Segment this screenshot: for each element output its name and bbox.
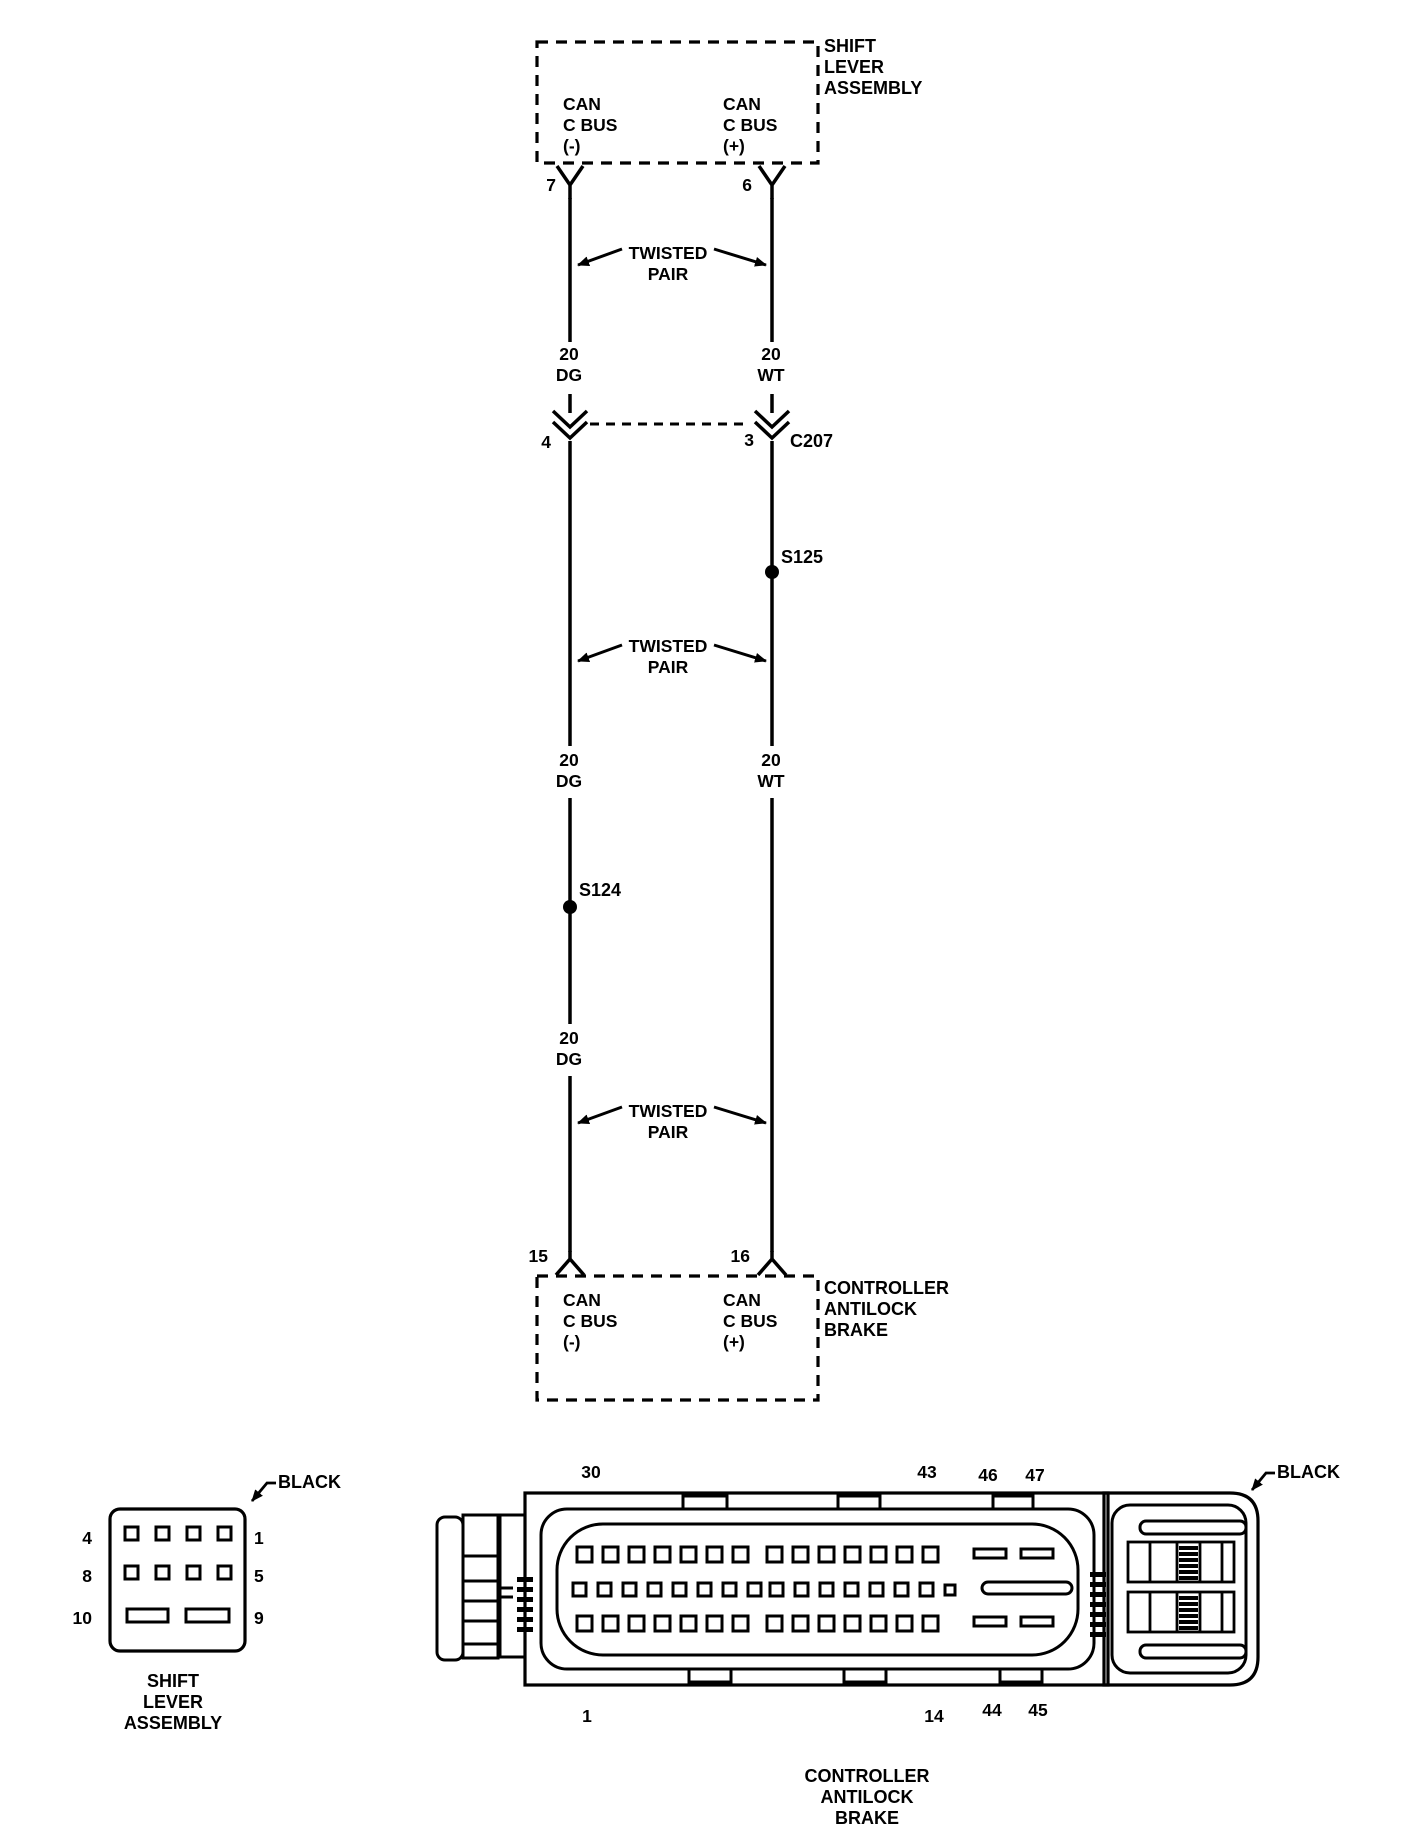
cab-pin-46: 46 (968, 1465, 1008, 1486)
pin-cavity (897, 1616, 912, 1631)
pin-cavity (748, 1583, 761, 1596)
sla-pin-9: 9 (254, 1608, 264, 1629)
pin-cavity (655, 1616, 670, 1631)
sla-pin-10: 10 (54, 1608, 92, 1629)
fork-bottom-left-icon (556, 1251, 584, 1275)
sla-pin-1: 1 (254, 1528, 264, 1549)
pin-cavity (845, 1616, 860, 1631)
pin-cavity (707, 1547, 722, 1562)
bottom-signal-left-label: CAN C BUS (-) (563, 1290, 617, 1353)
terminal-stripes (1179, 1546, 1198, 1630)
pin-cavity (923, 1616, 938, 1631)
wiring-diagram-page: CAN C BUS (-) CAN C BUS (+) SHIFT LEVER … (0, 0, 1408, 1828)
pin-cavity (793, 1547, 808, 1562)
pin-cavity (793, 1616, 808, 1631)
splice-dot-s124 (563, 900, 577, 914)
bottom-pin-left-number: 15 (514, 1246, 548, 1267)
pin-cavity (723, 1583, 736, 1596)
bottom-pin-right-number: 16 (716, 1246, 750, 1267)
pin-cavity (629, 1547, 644, 1562)
pin-cavity (870, 1583, 883, 1596)
cab-connector-drawing (437, 1493, 1258, 1685)
pin-cavity (920, 1583, 933, 1596)
pin-cavity (655, 1547, 670, 1562)
pin-cavity (733, 1616, 748, 1631)
pin-cavity (603, 1616, 618, 1631)
sla-pin-8: 8 (62, 1566, 92, 1587)
twisted-pair-label-1: TWISTED PAIR (601, 243, 735, 285)
bottom-component-name: CONTROLLER ANTILOCK BRAKE (824, 1278, 949, 1341)
pin-cavity (871, 1616, 886, 1631)
pin-cavity (770, 1583, 783, 1596)
pin-cavity (895, 1583, 908, 1596)
pin-cavity (819, 1616, 834, 1631)
pin-cavity (598, 1583, 611, 1596)
black-callout-arrows (252, 1473, 1275, 1501)
pin-cavity (573, 1583, 586, 1596)
pin-cavity (623, 1583, 636, 1596)
pin-cavity (577, 1616, 592, 1631)
pin-cavity (577, 1547, 592, 1562)
pin-cavity (673, 1583, 686, 1596)
top-pin-left-number: 7 (530, 175, 556, 196)
sla-caption: SHIFT LEVER ASSEMBLY (93, 1671, 253, 1734)
pin-cavity (603, 1547, 618, 1562)
splice-s124-label: S124 (579, 880, 621, 901)
fork-bottom-right-icon (758, 1251, 786, 1275)
sla-pin-5: 5 (254, 1566, 264, 1587)
c207-connector-name: C207 (790, 431, 833, 452)
pin-cavity (871, 1547, 886, 1562)
pin-cavity (629, 1616, 644, 1631)
sla-pin-4: 4 (62, 1528, 92, 1549)
pin-cavity (845, 1547, 860, 1562)
cab-caption: CONTROLLER ANTILOCK BRAKE (767, 1766, 967, 1828)
pin-cavity (733, 1547, 748, 1562)
pin-cavity (923, 1547, 938, 1562)
pin-cavity (819, 1547, 834, 1562)
cab-pin-30: 30 (571, 1462, 611, 1483)
can-bus-wires (570, 198, 772, 1252)
c207-pin-right-number: 3 (726, 430, 754, 451)
bottom-signal-right-label: CAN C BUS (+) (723, 1290, 777, 1353)
pin-cavity (795, 1583, 808, 1596)
pin-cavity (820, 1583, 833, 1596)
pin-cavity (897, 1547, 912, 1562)
cab-color-label: BLACK (1277, 1462, 1340, 1483)
cab-pin-45: 45 (1018, 1700, 1058, 1721)
sla-connector-drawing (110, 1509, 245, 1651)
wire-gauge-right-1: 20 WT (744, 344, 798, 386)
pin-cavity (681, 1616, 696, 1631)
twisted-pair-label-3: TWISTED PAIR (601, 1101, 735, 1143)
cab-pin-1: 1 (567, 1706, 607, 1727)
pin-cavity (767, 1616, 782, 1631)
fork-top-left-icon (557, 166, 583, 199)
cab-black-arrow (1252, 1473, 1275, 1490)
cab-pin-43: 43 (907, 1462, 947, 1483)
cab-pin-47: 47 (1015, 1465, 1055, 1486)
wire-gauge-left-1: 20 DG (542, 344, 596, 386)
fork-top-right-icon (759, 166, 785, 199)
pin-cavity (698, 1583, 711, 1596)
cab-pin-field (573, 1547, 938, 1631)
cab-pin-14: 14 (914, 1706, 954, 1727)
twisted-pair-label-2: TWISTED PAIR (601, 636, 735, 678)
splice-s125-label: S125 (781, 547, 823, 568)
c207-pin-left-number: 4 (523, 432, 551, 453)
top-pin-right-number: 6 (726, 175, 752, 196)
pin-cavity (707, 1616, 722, 1631)
pin-cavity (845, 1583, 858, 1596)
top-signal-right-label: CAN C BUS (+) (723, 94, 777, 157)
cab-pin-44: 44 (972, 1700, 1012, 1721)
pin-cavity (767, 1547, 782, 1562)
twisted-pair-arrows (578, 249, 766, 1123)
sla-black-arrow (252, 1483, 276, 1501)
pin-cavity (681, 1547, 696, 1562)
pin-cavity (648, 1583, 661, 1596)
sla-color-label: BLACK (278, 1472, 341, 1493)
wire-gauge-left-2: 20 DG (542, 750, 596, 792)
splice-dot-s125 (765, 565, 779, 579)
top-component-name: SHIFT LEVER ASSEMBLY (824, 36, 922, 99)
wire-gauge-left-3: 20 DG (542, 1028, 596, 1070)
wire-gauge-right-2: 20 WT (744, 750, 798, 792)
top-signal-left-label: CAN C BUS (-) (563, 94, 617, 157)
